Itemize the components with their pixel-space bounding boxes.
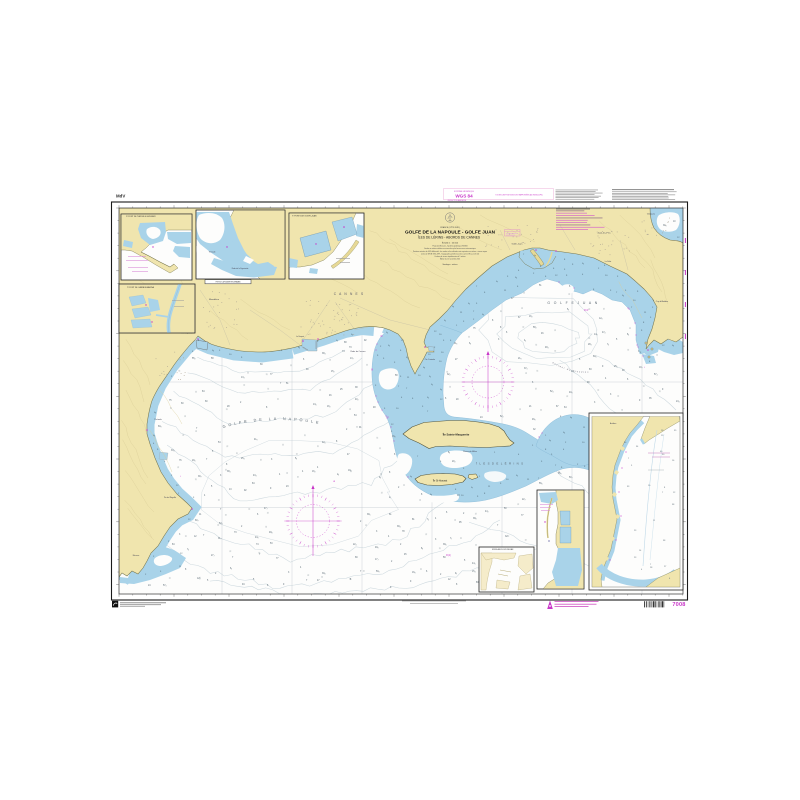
svg-text:Rade de la Figueirette: Rade de la Figueirette <box>232 267 249 270</box>
svg-text:Fl.R: Fl.R <box>584 309 589 312</box>
svg-text:Fl(2): Fl(2) <box>446 554 451 557</box>
svg-text:Cap d'Antibes: Cap d'Antibes <box>656 300 668 303</box>
svg-text:GOLFE DE LA NAPOULE - GOLFE JU: GOLFE DE LA NAPOULE - GOLFE JUAN <box>405 229 496 234</box>
svg-text:Île St-Honorat: Île St-Honorat <box>432 479 448 482</box>
svg-text:① PORTS DE GOLFE-JUAN: ① PORTS DE GOLFE-JUAN <box>292 214 317 217</box>
svg-text:Pte de l'Aiguille: Pte de l'Aiguille <box>164 496 176 499</box>
svg-text:Pte Croisette: Pte Croisette <box>425 358 435 361</box>
svg-text:Échelle 1 : 25 000: Échelle 1 : 25 000 <box>442 242 459 245</box>
svg-text:② PORT DE CANNES-MARINA: ② PORT DE CANNES-MARINA <box>127 286 155 289</box>
svg-text:C A N N E S: C A N N E S <box>334 292 365 296</box>
svg-text:Î L E S D E L É R I N S: Î L E S D E L É R I N S <box>475 461 524 466</box>
svg-text:Juan-les-Pins: Juan-les-Pins <box>597 233 611 235</box>
svg-text:ÎLES DE LÉRINS - ABORDS DE C: ÎLES DE LÉRINS - ABORDS DE CANNES <box>417 234 481 239</box>
svg-text:Antibes: Antibes <box>610 422 616 425</box>
svg-text:⑥ PORT DE THÉOULE-SUR-MER: ⑥ PORT DE THÉOULE-SUR-MER <box>126 215 156 218</box>
svg-text:G O L F E J U A N: G O L F E J U A N <box>547 301 598 305</box>
svg-text:Golfe-Juan: Golfe-Juan <box>512 244 523 246</box>
svg-text:★: ★ <box>333 480 335 483</box>
svg-text:FRANCE (CÔTE SUD): FRANCE (CÔTE SUD) <box>440 226 460 229</box>
svg-text:Rade de Cannes: Rade de Cannes <box>350 351 365 353</box>
svg-text:Théoule: Théoule <box>209 252 216 254</box>
svg-text:Miramar: Miramar <box>133 555 140 557</box>
svg-text:MdV: MdV <box>116 194 125 199</box>
svg-text:Mandelieu: Mandelieu <box>209 299 220 301</box>
svg-text:Vallauris: Vallauris <box>647 213 656 216</box>
svg-text:Le Suquet: Le Suquet <box>296 335 305 338</box>
svg-text:Plateau du Milieu: Plateau du Milieu <box>463 450 477 453</box>
svg-text:Théoule: Théoule <box>154 419 162 421</box>
svg-text:WGS 84: WGS 84 <box>455 194 473 199</box>
svg-text:La Salis: La Salis <box>605 261 611 263</box>
svg-text:Sondages : mètres: Sondages : mètres <box>442 263 457 266</box>
svg-text:7008: 7008 <box>672 602 685 608</box>
